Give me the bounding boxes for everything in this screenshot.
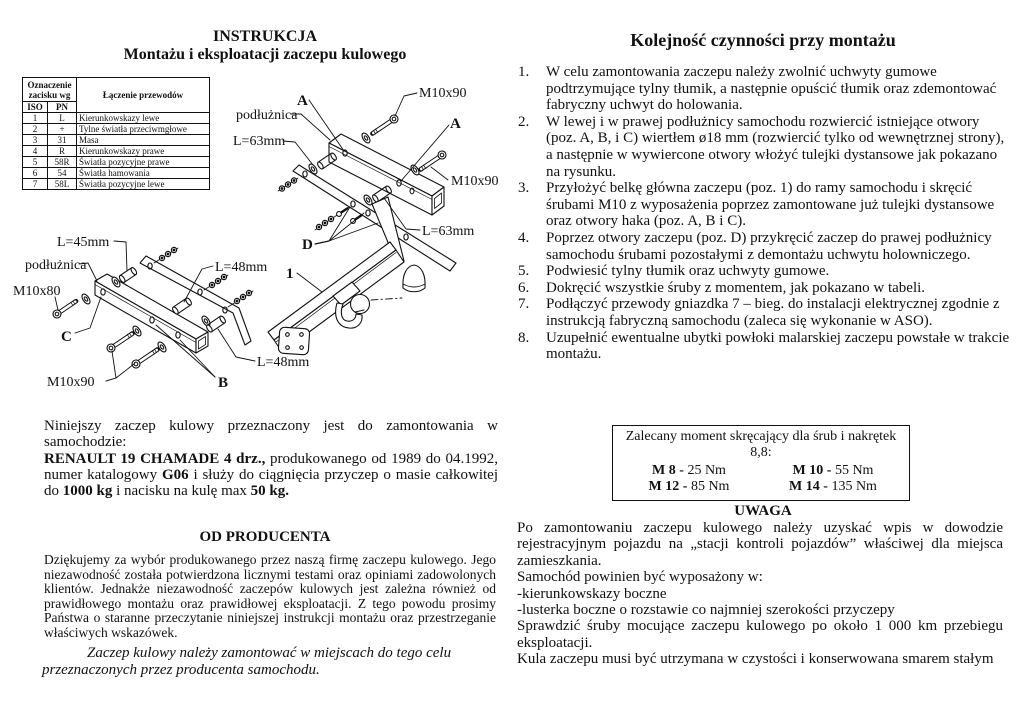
page-title: INSTRUKCJA Montażu i eksploatacji zaczep… [30,28,500,64]
torque-title: Zalecany moment skręcający dla śrub i na… [617,429,905,461]
label-l48-top: L=48mm [215,260,267,275]
step-text: Podłączyć przewody gniazdka 7 – bieg. do… [546,296,1010,329]
notice-body: Po zamontowaniu zaczepu kulowego należy … [517,520,1003,668]
title-line-1: INSTRUKCJA [30,28,500,46]
step-number: 2. [518,114,546,180]
spacer-sleeve-l45 [118,267,137,284]
step-number: 1. [518,64,546,114]
assembly-steps: 1.W celu zamontowania zaczepu należy zwo… [518,64,1010,363]
producer-heading: OD PRODUCENTA [30,529,500,546]
step-number: 5. [518,263,546,280]
title-line-2: Montażu i eksploatacji zaczepu kulowego [30,46,500,64]
spacer-sleeve-l48 [171,297,192,315]
notice-list-item: -kierunkowskazy boczne [517,586,1003,602]
intro-detail: RENAULT 19 CHAMADE 4 drz., produkowanego… [44,451,498,500]
torque-value: 85 Nm [687,479,729,494]
step-text: W lewej i w prawej podłużnicy samochodu … [546,114,1010,180]
alignment-dash-line [371,298,402,300]
step-text: Przyłożyć belkę główna zaczepu (poz. 1) … [546,180,1010,230]
notice-paragraph: Sprawdzić śruby mocujące zaczepu kuloweg… [517,618,1003,651]
torque-value: 135 Nm [828,479,877,494]
torque-value: 25 Nm [684,463,726,478]
bolt-m10x90 [418,149,447,172]
notice-paragraph: Samochód powinien być wyposażony w: [517,569,1003,585]
torque-item: M 8 - 25 Nm [617,463,761,479]
torque-value: 55 Nm [831,463,873,478]
torque-label: M 10 - [793,463,832,478]
step-number: 8. [518,330,546,363]
step-item: 8.Uzupełnić ewentualne ubytki powłoki ma… [518,330,1010,363]
step-text: Podwiesić tylny tłumik oraz uchwyty gumo… [546,263,1010,280]
producer-note: Zaczep kulowy należy zamontować w miejsc… [42,645,484,678]
spacer-sleeve-l63 [316,152,337,170]
label-m10x90-right: M10x90 [451,174,498,189]
notice-paragraph: Kula zaczepu musi być utrzymana w czysto… [517,651,1003,667]
label-m10x80: M10x80 [13,284,60,299]
nut-chain [228,290,253,307]
label-l45: L=45mm [57,235,109,250]
torque-item: M 12 - 85 Nm [617,479,761,495]
nut-chain [154,247,178,263]
instruction-page: INSTRUKCJA Montażu i eksploatacji zaczep… [0,0,1024,724]
step-text: W celu zamontowania zaczepu należy zwoln… [546,64,1010,114]
step-text: Uzupełnić ewentualne ubytki powłoki mala… [546,330,1010,363]
catalog-number: G06 [162,467,189,483]
label-l63-right: L=63mm [422,224,474,239]
notice-paragraph: Po zamontowaniu zaczepu kulowego należy … [517,520,1003,569]
exploded-diagram: A M10x90 podłużnica L=63mm A M10x90 L=63… [8,85,508,415]
label-pos1: 1 [286,266,294,282]
step-item: 7.Podłączyć przewody gniazdka 7 – bieg. … [518,296,1010,329]
crossbar-end-plate [278,327,310,355]
label-m10x90-bottom: M10x90 [47,375,94,390]
step-text: Dokręcić wszystkie śruby z momentem, jak… [546,280,1010,297]
torque-label: M 8 - [652,463,684,478]
torque-label: M 12 - [649,479,688,494]
vehicle-intro: Niniejszy zaczep kulowy przeznaczony jes… [44,418,498,499]
step-item: 1.W celu zamontowania zaczepu należy zwo… [518,64,1010,114]
bolt-m10x90 [130,346,159,369]
intro-text: i nacisku na kulę max [112,483,250,499]
torque-box: Zalecany moment skręcający dla śrub i na… [612,425,910,501]
step-number: 6. [518,280,546,297]
vehicle-model: RENAULT 19 CHAMADE 4 drz., [44,451,265,467]
step-item: 2.W lewej i w prawej podłużnicy samochod… [518,114,1010,180]
torque-item: M 10 - 55 Nm [761,463,905,479]
max-ball-load: 50 kg. [251,483,289,499]
washer [360,132,371,145]
label-c: C [61,329,72,345]
max-trailer-mass: 1000 kg [63,483,113,499]
label-d: D [302,237,313,253]
bolt-m10x90 [370,113,399,136]
washer [80,293,91,306]
label-podluznica-top: podłużnica [236,108,298,123]
label-a-right: A [450,116,461,132]
producer-body: Dziękujemy za wybór produkowanego przez … [44,553,496,641]
notice-heading: UWAGA [517,503,1009,520]
nut-chain [204,274,228,290]
step-text: Poprzez otwory zaczepu (poz. D) przykręc… [546,230,1010,263]
label-b: B [218,375,228,391]
step-number: 4. [518,230,546,263]
spacer-sleeve-l48 [205,315,226,333]
nut-chain [278,178,298,191]
notice-list-item: -lusterka boczne o rozstawie co najmniej… [517,602,1003,618]
bolt-m10x90 [105,330,134,353]
torque-item: M 14 - 135 Nm [761,479,905,495]
label-m10x90-top: M10x90 [419,86,466,101]
assembly-title: Kolejność czynności przy montażu [517,30,1009,51]
step-number: 7. [518,296,546,329]
step-number: 3. [518,180,546,230]
step-item: 3.Przyłożyć belkę główna zaczepu (poz. 1… [518,180,1010,230]
step-item: 6.Dokręcić wszystkie śruby z momentem, j… [518,280,1010,297]
label-podluznica-left: podłużnica [25,258,87,273]
torque-label: M 14 - [789,479,828,494]
step-item: 4.Poprzez otwory zaczepu (poz. D) przykr… [518,230,1010,263]
torque-grid: M 8 - 25 Nm M 10 - 55 Nm M 12 - 85 Nm M … [617,463,905,495]
step-item: 5.Podwiesić tylny tłumik oraz uchwyty gu… [518,263,1010,280]
label-l48-bottom: L=48mm [257,355,309,370]
bolt-m10x80 [51,298,78,320]
label-l63-left: L=63mm [233,134,285,149]
label-a-top: A [297,93,308,109]
intro-line: Niniejszy zaczep kulowy przeznaczony jes… [44,418,498,451]
